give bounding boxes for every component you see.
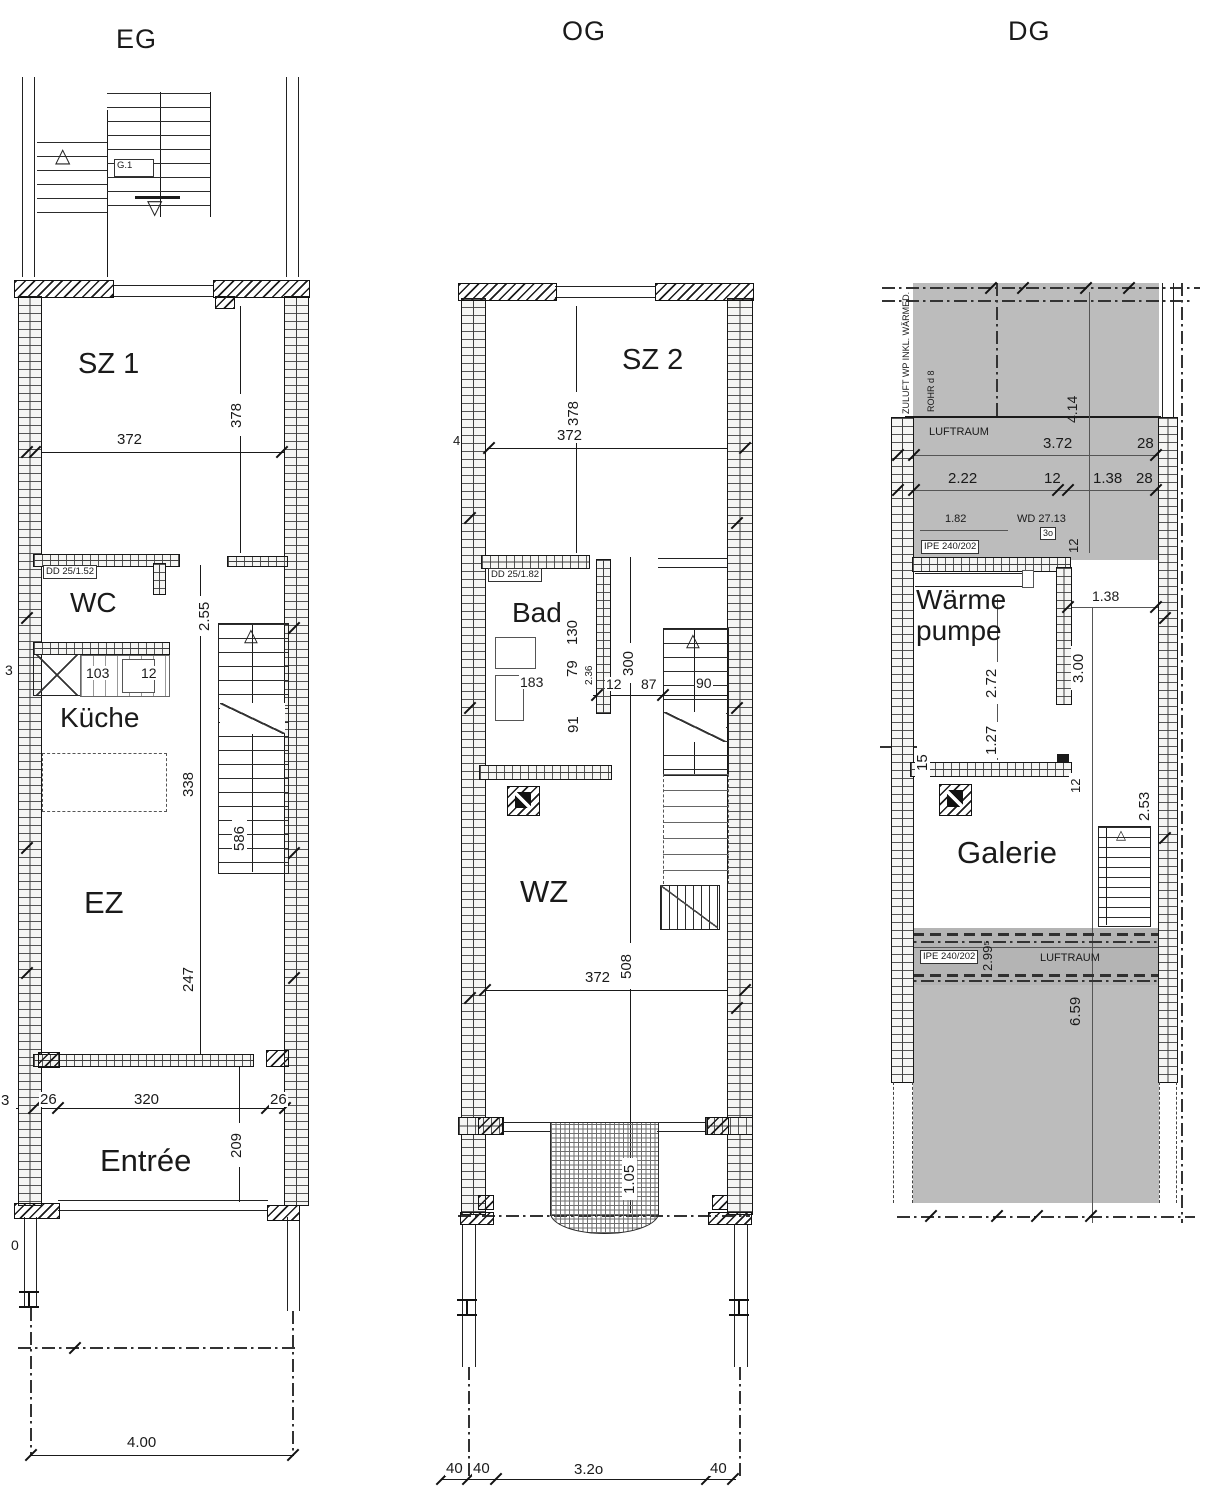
steel-column-icon — [19, 1291, 39, 1308]
stair-rail — [22, 77, 35, 277]
dashed-edge — [913, 933, 1159, 936]
exterior-wall — [655, 283, 754, 301]
dim-label: 26 — [269, 1092, 288, 1107]
dim-label: 4.14 — [1065, 389, 1079, 429]
annotation-zuluft: ZULUFT WP INKL. WÄRMED. — [902, 287, 911, 419]
dim-line — [36, 452, 284, 453]
wall-stub — [478, 1195, 494, 1210]
extension-line — [292, 1311, 294, 1455]
floor-title-og: OG — [562, 16, 606, 47]
axis-line — [897, 980, 1172, 982]
porch-rail — [462, 1224, 476, 1367]
extension-line — [739, 1367, 741, 1477]
dashed-edge — [913, 974, 1159, 977]
dim-line — [30, 1455, 294, 1456]
door-threshold — [58, 1200, 268, 1211]
dim-label: 378 — [229, 394, 244, 436]
chimney-core — [947, 790, 963, 807]
wall-left — [18, 296, 42, 1206]
void-area — [913, 985, 1159, 1203]
dim-label: 28 — [1136, 436, 1155, 451]
dim-label-partial: 3 — [4, 663, 14, 677]
axis-line — [882, 287, 1200, 289]
annotation-rohr: ROHR d 8 — [927, 364, 936, 418]
stair-up-arrow-icon: △ — [1116, 828, 1126, 841]
exterior-wall — [267, 1205, 300, 1221]
dim-label: 12 — [1043, 471, 1062, 486]
dim-label: 91 — [566, 710, 581, 740]
annotation-wd: WD 27.13 — [1016, 514, 1067, 525]
wall-stub — [712, 1195, 728, 1210]
dim-label: 209 — [229, 1123, 244, 1167]
wall-right — [1158, 417, 1178, 1083]
exterior-wall — [708, 1212, 752, 1225]
wall-interior — [1056, 567, 1072, 705]
dim-label: 87 — [640, 677, 658, 691]
fixture — [1022, 570, 1034, 588]
wall-stub — [266, 1050, 289, 1067]
window — [657, 1122, 705, 1132]
dim-label: 1.38 — [1091, 589, 1120, 603]
room-label-entree: Entrée — [100, 1144, 191, 1179]
floor-title-eg: EG — [116, 24, 157, 55]
exterior-wall — [458, 283, 557, 301]
wall-interior — [912, 557, 1071, 572]
stair-down-arrow-icon: ▽ — [147, 198, 162, 218]
stair-rail — [286, 77, 299, 277]
dim-label: 1.38 — [1092, 471, 1123, 486]
exterior-wall — [14, 280, 114, 298]
dim-label: 12 — [605, 677, 623, 691]
area-label-luftraum: LUFTRAUM — [928, 427, 990, 438]
exterior-stair-treads — [37, 142, 107, 215]
wall-line — [905, 416, 1161, 418]
dim-label: 3.00 — [1071, 646, 1086, 690]
dim-label: 2.22 — [947, 471, 978, 486]
dim-label: 247 — [181, 956, 196, 1002]
dim-label: 6.59 — [1068, 988, 1083, 1034]
wall-interior — [658, 558, 728, 568]
room-label-bad: Bad — [512, 597, 562, 628]
dim-label: 586 — [232, 816, 247, 860]
dim-label: 1.05 — [622, 1158, 637, 1200]
wall-stub — [215, 296, 235, 309]
stair-rail-dashed — [663, 774, 729, 884]
steel-column-icon — [729, 1299, 749, 1316]
axis-line — [18, 1347, 297, 1349]
door-label: DD 25/1.82 — [488, 568, 542, 582]
wall-interior — [227, 556, 288, 567]
exterior-wall — [460, 1212, 494, 1225]
dim-label: 2.72 — [984, 662, 999, 704]
dim-line — [200, 565, 201, 1055]
floor-title-dg: DG — [1008, 16, 1051, 47]
dim-label: 372 — [116, 432, 143, 447]
dim-label: 3.72 — [1042, 436, 1073, 451]
dim-line — [913, 455, 1158, 456]
dim-label: 79 — [565, 654, 580, 684]
dim-label: 508 — [619, 943, 634, 989]
dim-label: 372 — [584, 970, 611, 985]
dim-label: 12 — [1067, 533, 1080, 559]
room-label-ez: EZ — [84, 886, 124, 921]
dim-line — [487, 448, 748, 449]
stairs — [218, 623, 289, 874]
balcony-front — [550, 1213, 659, 1234]
beam-label: IPE 240/202 — [920, 950, 978, 964]
door-label: DD 25/1.52 — [43, 565, 97, 579]
dim-line — [1067, 607, 1158, 608]
kitchen-island — [42, 753, 167, 812]
dim-label: 3.2o — [573, 1462, 604, 1477]
entry-door-threshold — [112, 285, 213, 297]
dim-label: 320 — [133, 1092, 160, 1107]
dim-label: 372 — [556, 428, 583, 443]
dim-line — [481, 990, 747, 991]
dim-label: 300 — [621, 643, 636, 683]
room-label-sz1: SZ 1 — [78, 348, 139, 380]
stair-up-arrow-icon: △ — [686, 631, 700, 649]
beam-label: IPE 240/202 — [921, 540, 979, 554]
annotation-box: 3o — [1040, 527, 1056, 540]
room-label-sz2: SZ 2 — [622, 344, 683, 376]
party-wall — [1162, 283, 1174, 417]
room-label-kueche: Küche — [60, 702, 139, 733]
wall-interior — [481, 555, 590, 569]
edge-line — [913, 947, 1159, 948]
dim-line — [1089, 292, 1090, 553]
dim-label: 12 — [1069, 773, 1082, 799]
dim-label: 2.99⁵ — [981, 932, 994, 980]
dim-label: 40 — [472, 1461, 491, 1476]
stair-tag: G.1 — [114, 159, 154, 177]
stair-break-line — [220, 703, 285, 734]
chimney-core — [515, 792, 531, 808]
stair-string — [210, 92, 211, 217]
axis-line — [897, 941, 1172, 943]
dim-label: 2.53 — [1137, 788, 1152, 824]
wall-interior — [910, 762, 1072, 777]
dim-label: 28 — [1135, 471, 1154, 486]
dim-label: 103 — [85, 666, 110, 680]
porch-rail — [287, 1217, 300, 1311]
wall-stub — [153, 563, 166, 595]
wall-interior — [33, 1054, 254, 1067]
room-label-wz: WZ — [520, 875, 568, 910]
stair-up-arrow-icon: △ — [244, 626, 258, 644]
dim-label: 90 — [695, 676, 713, 690]
window — [555, 286, 655, 298]
steel-column-icon — [457, 1299, 477, 1316]
stair-up-arrow-icon: △ — [55, 146, 70, 166]
stair-break-line — [664, 712, 726, 742]
axis-line — [996, 283, 998, 417]
dim-line — [1092, 607, 1093, 1223]
dim-label: 2.55 — [197, 596, 212, 636]
wall-left — [891, 417, 914, 1083]
wall-interior — [479, 765, 612, 780]
dim-label-partial: 4 — [452, 434, 461, 447]
dim-label: 130 — [565, 613, 580, 651]
dim-label-partial: 3 — [0, 1093, 10, 1108]
dim-label: 40 — [445, 1461, 464, 1476]
wall-stub — [38, 1052, 60, 1068]
dim-label: 15 — [915, 749, 930, 777]
axis-line — [882, 300, 1192, 302]
porch-rail — [734, 1224, 748, 1367]
room-label-wc: WC — [70, 587, 117, 618]
bath-fixture — [495, 637, 536, 669]
wall-stub — [478, 1117, 503, 1135]
floorplan-sheet: EG △ G.1 ▽ SZ 1 378 372 DD 25/1.52 WC 2.… — [0, 0, 1220, 1500]
dim-label: 26 — [39, 1092, 58, 1107]
boundary-line — [1181, 283, 1183, 1223]
room-label-galerie: Galerie — [957, 836, 1057, 871]
axis-line — [897, 1216, 1195, 1218]
extension-line — [30, 1308, 32, 1455]
dim-label-partial: 0 — [10, 1238, 20, 1252]
wall-dashed — [1159, 1082, 1177, 1203]
wall-stub — [707, 1117, 729, 1135]
dim-label: 12 — [140, 666, 158, 680]
dim-label: 40 — [709, 1461, 728, 1476]
dim-label: 2.36 — [585, 658, 595, 693]
room-label-waermepumpe: Wärme pumpe — [916, 584, 1006, 647]
area-label-luftraum: LUFTRAUM — [1039, 953, 1101, 964]
dim-label: 1.27 — [984, 722, 999, 758]
shaft-symbol — [33, 654, 81, 696]
wall-right — [727, 298, 753, 1215]
extension-line — [468, 1367, 470, 1477]
wall-dashed — [893, 1082, 913, 1203]
dim-label: 4.00 — [126, 1435, 157, 1450]
balcony — [550, 1122, 659, 1216]
window — [502, 1122, 550, 1132]
dim-label: 183 — [519, 675, 544, 689]
dim-label: 338 — [181, 761, 196, 807]
exterior-wall — [14, 1203, 60, 1219]
stair-diagonal — [660, 885, 718, 928]
dim-line — [920, 530, 1008, 531]
dim-line — [913, 490, 1158, 491]
wall-left — [461, 298, 486, 1215]
dim-label: 1.82 — [944, 514, 967, 525]
stairs — [663, 628, 729, 776]
dim-line — [441, 1479, 736, 1480]
